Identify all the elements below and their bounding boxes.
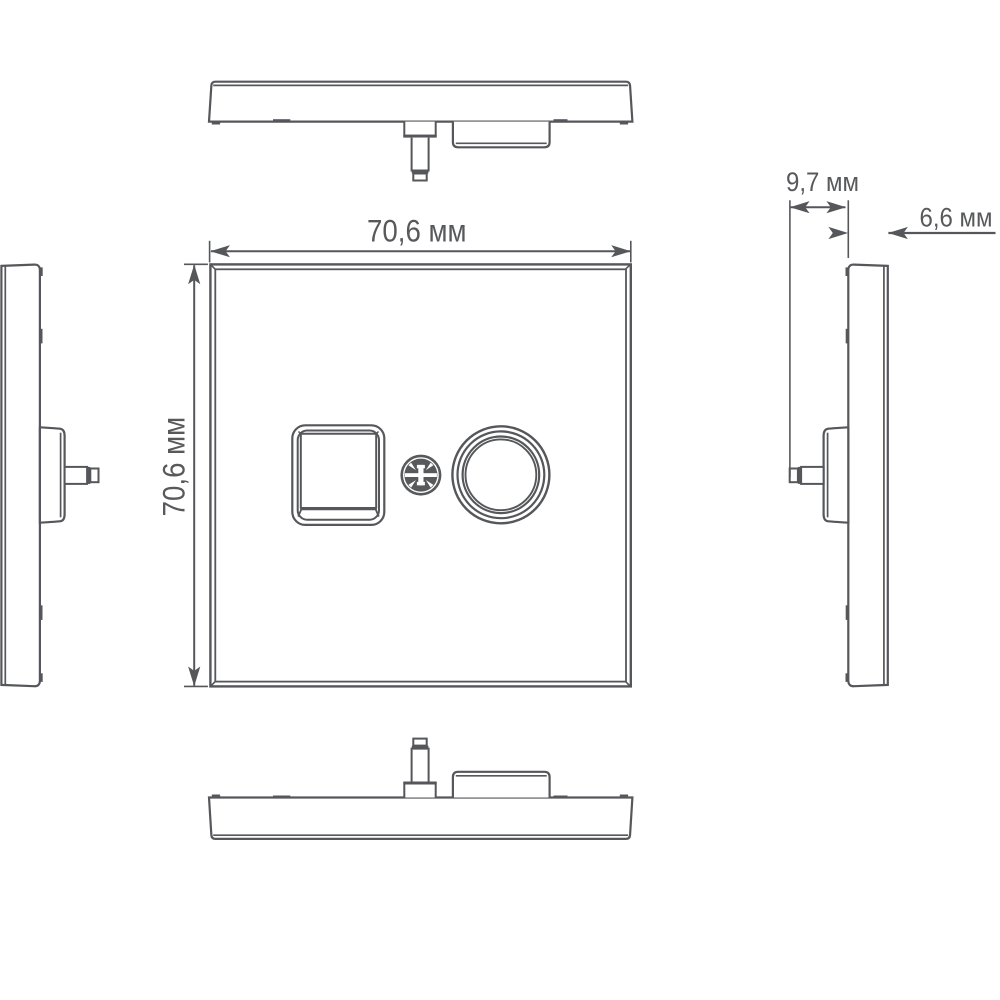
svg-text:70,6 мм: 70,6 мм [156, 417, 192, 516]
svg-text:9,7 мм: 9,7 мм [786, 167, 859, 197]
svg-text:70,6 мм: 70,6 мм [367, 213, 467, 249]
svg-text:6,6 мм: 6,6 мм [920, 202, 993, 232]
